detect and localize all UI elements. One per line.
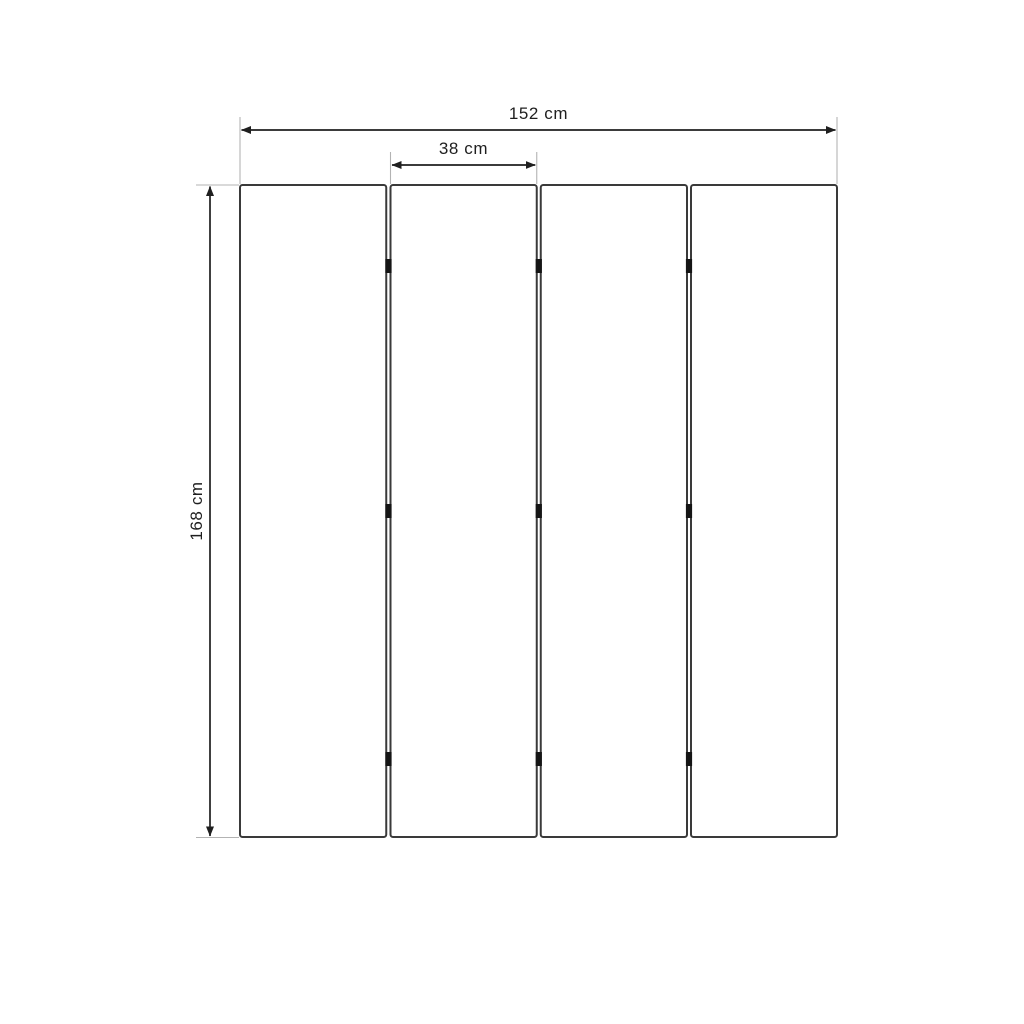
hinge-joint2-top (536, 259, 542, 273)
folding-screen-diagram: 152 cm 38 cm 168 cm (0, 0, 1024, 1024)
hinge-joint2-bottom (536, 752, 542, 766)
technical-drawing-canvas: 152 cm 38 cm 168 cm (0, 0, 1024, 1024)
panel-3 (541, 185, 687, 837)
dimension-panel-width-label: 38 cm (439, 139, 488, 158)
panel-4 (691, 185, 837, 837)
dimension-panel-width: 38 cm (391, 139, 537, 184)
hinge-joint1-top (385, 259, 391, 273)
dimension-height: 168 cm (187, 185, 239, 838)
hinge-joint3-top (686, 259, 692, 273)
dimension-height-label: 168 cm (187, 481, 206, 540)
hinge-joint3-bottom (686, 752, 692, 766)
dimension-total-width: 152 cm (240, 104, 837, 184)
hinge-joint1-middle (385, 504, 391, 518)
panel-1 (240, 185, 386, 837)
panel-2 (391, 185, 537, 837)
hinge-joint1-bottom (385, 752, 391, 766)
hinge-joint3-middle (686, 504, 692, 518)
hinge-joint2-middle (536, 504, 542, 518)
dimension-total-width-label: 152 cm (509, 104, 568, 123)
